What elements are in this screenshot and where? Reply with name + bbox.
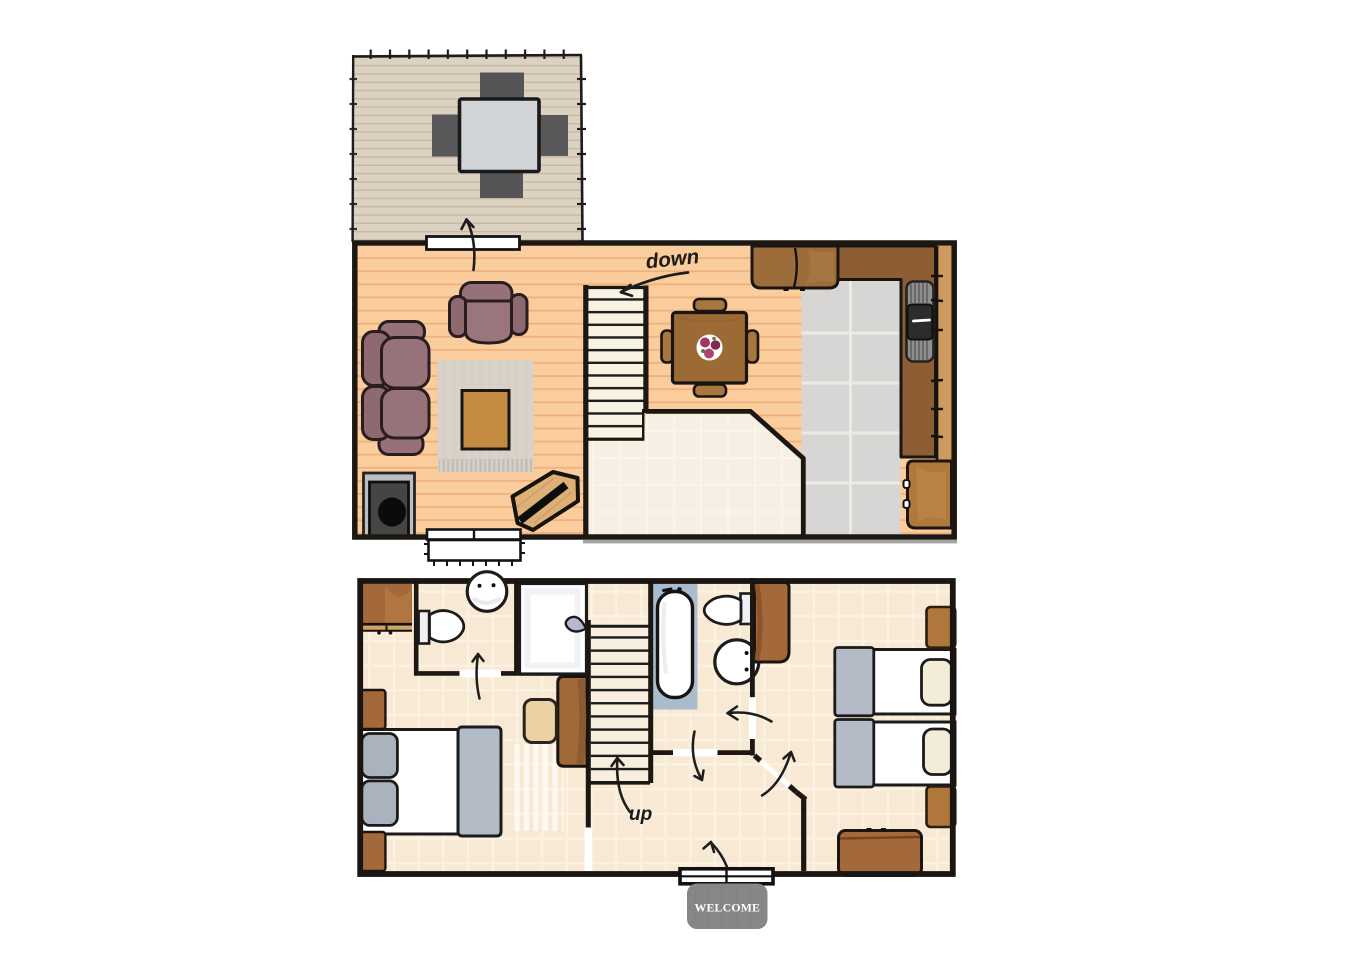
svg-text:up: up [629,804,652,825]
svg-text:WELCOME: WELCOME [694,901,760,915]
